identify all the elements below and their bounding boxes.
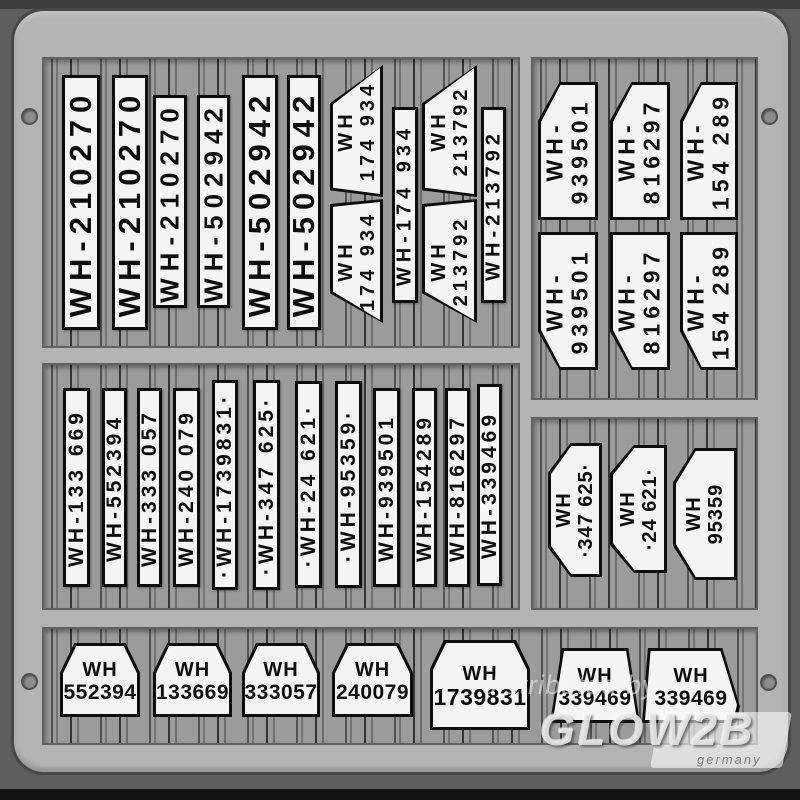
plate-label: WH-552394 [103, 413, 127, 561]
plate-face: WH133669 [156, 646, 229, 714]
plate-label: WH213792 [428, 216, 472, 307]
plate-face: WH213792 [425, 68, 474, 194]
plate-label: WH-939501 [543, 98, 594, 205]
plate-face: WH174 934 [333, 202, 380, 320]
plate-label: ·WH-24 621· [297, 402, 321, 566]
etched-plate: WH333057 [242, 643, 320, 717]
etched-plate: WH-816297 [610, 232, 670, 370]
etched-plate: WH-939501 [538, 82, 598, 220]
etched-plate: WH-154 289 [680, 82, 738, 220]
plate-label: WH-939501 [375, 413, 399, 561]
etched-plate: WH-210270 [62, 75, 100, 330]
plate-label: WH552394 [66, 649, 134, 711]
watermark-distributed-by: distributed by [482, 670, 657, 701]
etched-plate: WH-552394 [102, 388, 127, 587]
plate-label: WH-174 934 [394, 124, 417, 286]
etched-plate: WH-133 669 [63, 388, 90, 587]
plate-label: WH-154 289 [684, 242, 735, 360]
plate-label: ·WH-95359· [337, 407, 361, 561]
etched-plate: ·WH-95359· [335, 381, 362, 588]
plate-label: WH-339469 [478, 411, 502, 559]
etched-plate: WH-210270 [112, 75, 148, 330]
etched-plate: WH-339469 [477, 384, 502, 586]
etched-plate: ·WH-347 625· [253, 380, 280, 590]
plate-label: WH-502942 [198, 101, 229, 303]
etched-plate: WH-174 934 [392, 107, 418, 303]
etched-plate: WH133669 [153, 643, 232, 717]
plate-label: WH-154 289 [684, 92, 735, 210]
etched-plate: WH213792 [422, 65, 477, 197]
plate-face: WH213792 [425, 202, 474, 320]
etched-plate: WH-213792 [481, 107, 506, 303]
plate-label: WH-210270 [112, 88, 148, 316]
mounting-hole [21, 108, 38, 125]
plate-face: WH174 934 [333, 68, 380, 194]
plate-label: WH-133 669 [65, 409, 89, 567]
etched-plate: WH552394 [60, 643, 140, 717]
plate-label: WH95359 [683, 484, 727, 545]
etched-plate: ·WH-24 621· [295, 381, 322, 588]
etched-plate: WH-502942 [242, 75, 278, 330]
plate-face: WH·347 625· [551, 446, 599, 574]
plate-face: WH333057 [245, 646, 317, 714]
plate-face: WH552394 [63, 646, 137, 714]
etched-plate: WH-210270 [153, 95, 187, 308]
etched-plate: WH-502942 [197, 95, 230, 308]
plate-face: WH·24 621· [613, 448, 664, 570]
plate-label: WH-210270 [63, 88, 99, 316]
plate-label: WH333057 [248, 649, 314, 711]
etched-plate: WH·347 625· [548, 443, 602, 577]
background-edge-top [0, 0, 800, 9]
plate-label: WH·24 621· [617, 468, 661, 551]
mounting-hole [761, 108, 778, 125]
etched-plate: WH-240 079 [173, 388, 200, 587]
plate-face: WH95359 [676, 451, 734, 577]
etched-plate: WH-816297 [610, 82, 670, 220]
etched-plate: WH174 934 [330, 199, 383, 323]
plate-label: WH-816297 [615, 98, 666, 205]
etched-plate: WH-154 289 [680, 232, 738, 370]
plate-label: WH-333 057 [138, 409, 162, 567]
etched-plate: WH-939501 [538, 232, 598, 370]
product-photo: WH-210270 WH-210270 WH-210270 WH-502942 … [0, 0, 800, 800]
plate-label: WH-816297 [615, 248, 666, 355]
mounting-hole [21, 673, 38, 690]
plate-label: WH·347 625· [553, 463, 597, 558]
etched-plate: WH174 934 [330, 65, 383, 197]
plate-label: WH-502942 [242, 88, 278, 316]
plate-label: WH-240 079 [175, 409, 199, 567]
etched-plate: WH-333 057 [137, 388, 162, 587]
etched-plate: WH-816297 [445, 388, 470, 587]
plate-label: WH133669 [159, 649, 226, 711]
etched-plate: ·WH-1739831· [212, 380, 238, 590]
plate-label: ·WH-1739831· [213, 392, 237, 578]
plate-label: WH-502942 [286, 88, 322, 316]
plate-label: WH-816297 [446, 413, 470, 561]
etched-plate: WH-502942 [287, 75, 321, 330]
etched-plate: WH-154289 [412, 388, 437, 587]
etched-plate: WH240079 [332, 643, 413, 717]
plate-label: WH-154289 [413, 413, 437, 561]
mounting-hole [760, 674, 777, 691]
etched-plate: WH213792 [422, 199, 477, 323]
plate-label: WH174 934 [335, 211, 379, 311]
plate-label: WH-210270 [155, 101, 186, 303]
plate-label: ·WH-347 625· [255, 395, 279, 575]
plate-face: WH240079 [335, 646, 410, 714]
etched-plate: WH·24 621· [610, 445, 667, 573]
plate-label: WH213792 [428, 86, 472, 177]
etched-plate: WH95359 [673, 448, 737, 580]
plate-label: WH-213792 [482, 129, 505, 281]
plate-label: WH-939501 [543, 248, 594, 355]
plate-label: WH240079 [338, 649, 407, 711]
watermark-brand-logo: GLOW2B [540, 704, 756, 756]
background-edge-bottom [0, 789, 800, 800]
watermark-brand-country: germany [697, 752, 762, 767]
etched-plate: WH-939501 [373, 388, 400, 587]
